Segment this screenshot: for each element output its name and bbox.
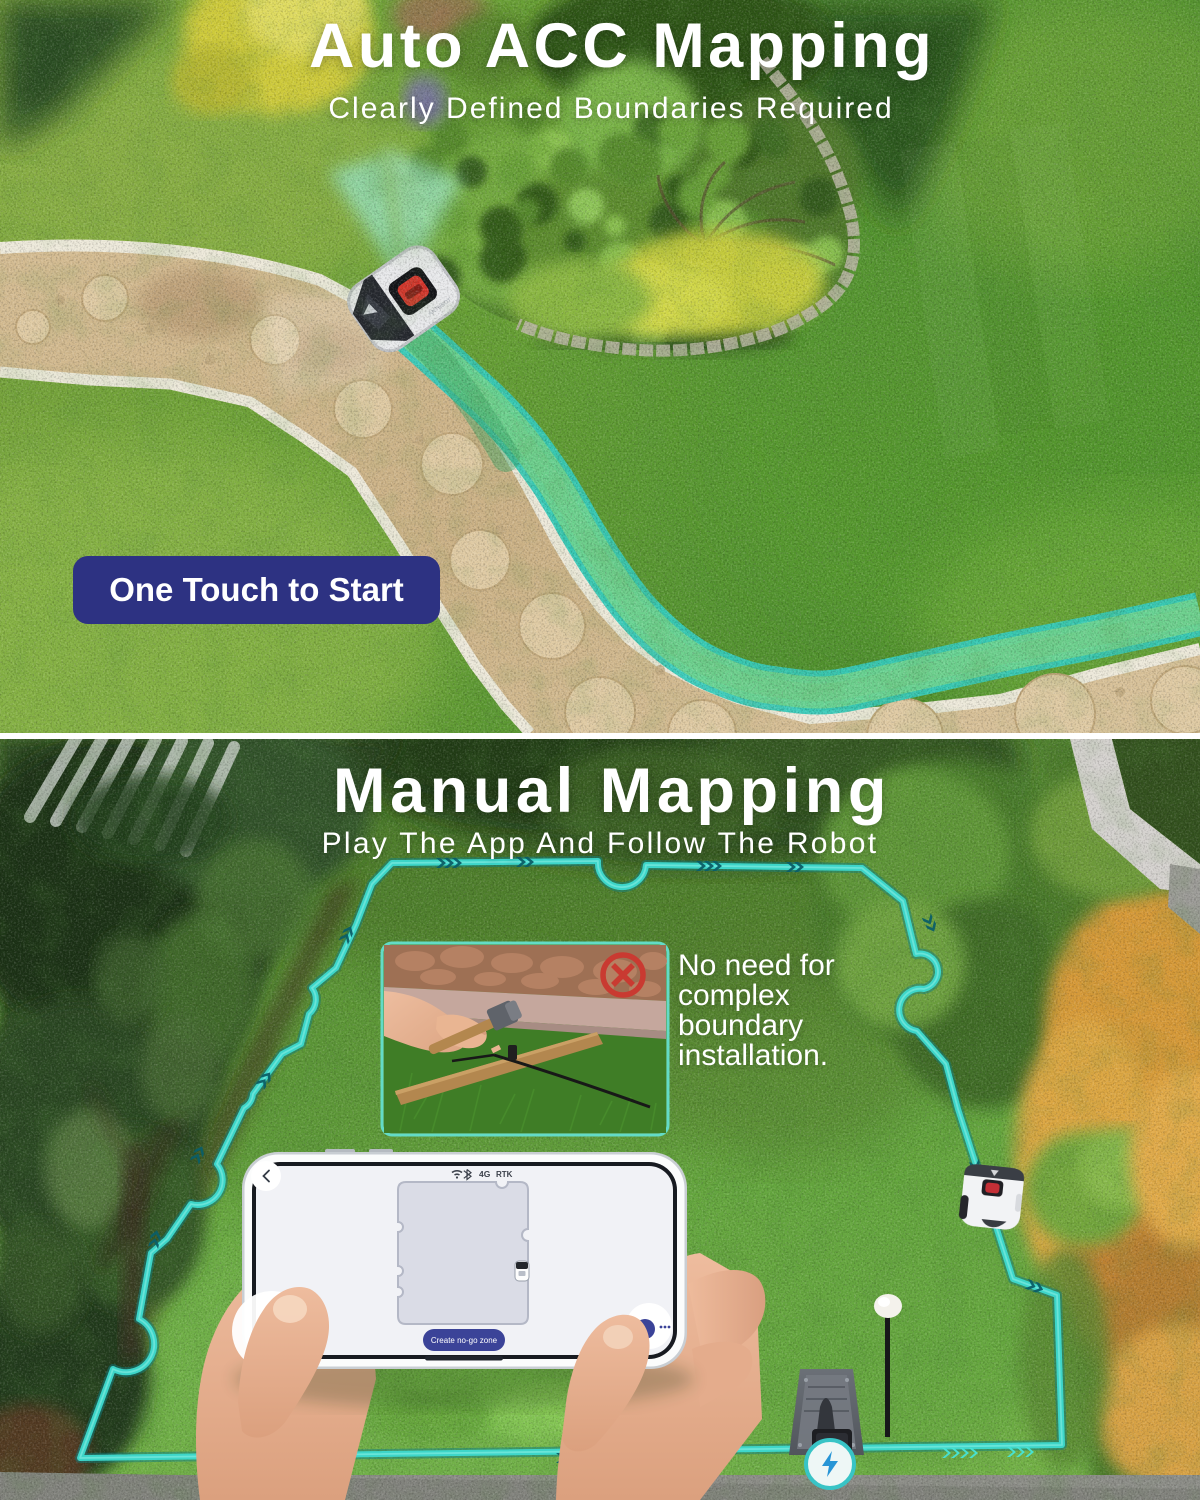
svg-text:Create no-go zone: Create no-go zone — [431, 1336, 498, 1345]
svg-text:RTK: RTK — [496, 1170, 513, 1179]
svg-text:4G: 4G — [479, 1169, 491, 1179]
